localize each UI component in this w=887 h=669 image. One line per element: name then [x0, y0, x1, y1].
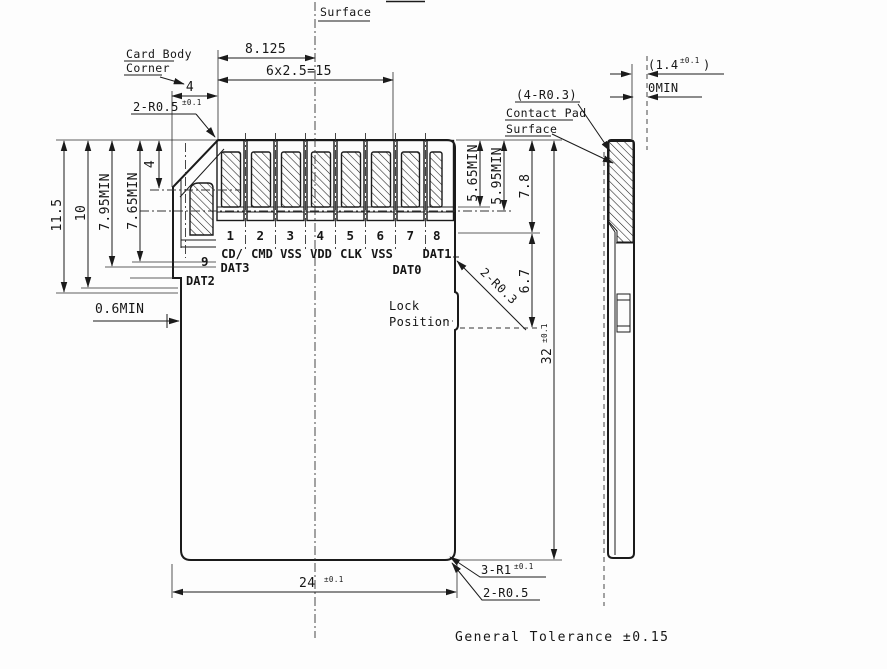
- lock-radius-label: 2-R0.3: [477, 265, 520, 307]
- pin-number-4: 4: [317, 228, 325, 243]
- cbc-leader: [160, 77, 184, 84]
- pin-labels: 1 2 3 4 5 6 7 8 9 CD/ DAT3 CMD VSS VDD C…: [186, 228, 451, 288]
- pin-slot-7: [397, 141, 424, 221]
- pin9-pad-group: [181, 179, 216, 248]
- contact-pad-6: [372, 152, 391, 207]
- dim-78: 7.8: [518, 174, 533, 199]
- dim-115: 11.5: [50, 199, 65, 232]
- dim-14-tol: ±0.1: [680, 56, 700, 65]
- pin-slot-3: [277, 141, 304, 221]
- contact-pad-7: [402, 152, 420, 207]
- contact-pad-surface-label-2: Surface: [506, 122, 557, 136]
- pin-label-clk: CLK: [340, 247, 362, 261]
- contact-pad-1: [222, 152, 241, 207]
- pin-slot-5: [337, 141, 364, 221]
- bottom-r05-label: 2-R0.5: [483, 586, 529, 600]
- pin-number-5: 5: [347, 228, 355, 243]
- pin-number-7: 7: [407, 228, 415, 243]
- dim-chamfer-h: 4: [143, 160, 158, 168]
- pin-label-dat0: DAT0: [393, 263, 422, 277]
- lock-position-label-2: Position: [389, 315, 450, 329]
- pin-slot-2: [247, 141, 274, 221]
- bottom-dimensions: 24 ±0.1 3-R1 ±0.1 2-R0.5: [172, 557, 546, 600]
- dim-pitch: 6x2.5=15: [266, 64, 332, 79]
- corner-radius-tol: ±0.1: [182, 98, 202, 107]
- dim-10: 10: [74, 205, 89, 221]
- contact-pad-8: [430, 152, 442, 207]
- pin-number-1: 1: [227, 228, 235, 243]
- card-body-corner-label-1: Card Body: [126, 47, 192, 61]
- pin-number-3: 3: [287, 228, 295, 243]
- contact-pad-4: [312, 152, 331, 207]
- pin-number-8: 8: [433, 228, 441, 243]
- lock-position-label-1: Lock: [389, 299, 420, 313]
- pin-number-2: 2: [257, 228, 265, 243]
- dim-565: 5.65MIN: [466, 144, 481, 202]
- pin-slot-4: [307, 141, 334, 221]
- contact-pad-3: [282, 152, 301, 207]
- dim-67: 6.7: [518, 269, 533, 294]
- pin-label-vdd: VDD: [310, 247, 332, 261]
- side-lock-switch: [617, 294, 630, 332]
- dim-795: 7.95MIN: [98, 173, 113, 231]
- dim-0min: 0MIN: [648, 81, 679, 95]
- contact-pad-surface-label-1: Contact Pad: [506, 106, 587, 120]
- pin-label-dat3: DAT3: [221, 261, 250, 275]
- contact-pad-2: [252, 152, 271, 207]
- general-tolerance-note: General Tolerance ±0.15: [455, 630, 670, 645]
- pin-label-cmd: CMD: [251, 247, 273, 261]
- contact-pad-5: [342, 152, 361, 207]
- bottom-r1-tol: ±0.1: [514, 562, 534, 571]
- dim-32: 32: [540, 348, 555, 364]
- pin-label-cd: CD/: [221, 247, 243, 261]
- pin-slot-8: [427, 141, 454, 221]
- corner-radius-leader: [196, 114, 215, 137]
- dim-14-open: (1.4: [648, 58, 679, 72]
- side-contact-hatch: [609, 142, 633, 243]
- surface-label: Surface: [320, 5, 371, 19]
- dim-24-tol: ±0.1: [324, 575, 344, 584]
- dim-8125: 8.125: [245, 42, 286, 57]
- contact-pad-9: [190, 183, 213, 235]
- pad-corner-radius-label: (4-R0.3): [516, 88, 577, 102]
- cps-leader: [552, 134, 613, 163]
- bottom-r1-label: 3-R1: [481, 563, 512, 577]
- dim-24: 24: [299, 576, 315, 591]
- pin-slot-6: [367, 141, 394, 221]
- drawing-sheet: 1 2 3 4 5 6 7 8 9 CD/ DAT3 CMD VSS VDD C…: [0, 0, 887, 669]
- sd-card-mechanical-drawing: 1 2 3 4 5 6 7 8 9 CD/ DAT3 CMD VSS VDD C…: [0, 0, 887, 669]
- pin-label-dat2: DAT2: [186, 274, 215, 288]
- pin-number-6: 6: [377, 228, 385, 243]
- dim-06min: 0.6MIN: [95, 302, 144, 317]
- dim-32-tol: ±0.1: [540, 323, 549, 343]
- dim-chamfer-w: 4: [186, 80, 194, 95]
- pin-label-vss2: VSS: [371, 247, 393, 261]
- pin-label-vss1: VSS: [280, 247, 302, 261]
- side-view: [604, 140, 634, 606]
- pin-label-dat1: DAT1: [423, 247, 452, 261]
- card-body-corner-label-2: Corner: [126, 61, 170, 75]
- dim-595: 5.95MIN: [490, 147, 505, 205]
- dim-765: 7.65MIN: [126, 172, 141, 230]
- dim-14-close: ): [703, 58, 711, 72]
